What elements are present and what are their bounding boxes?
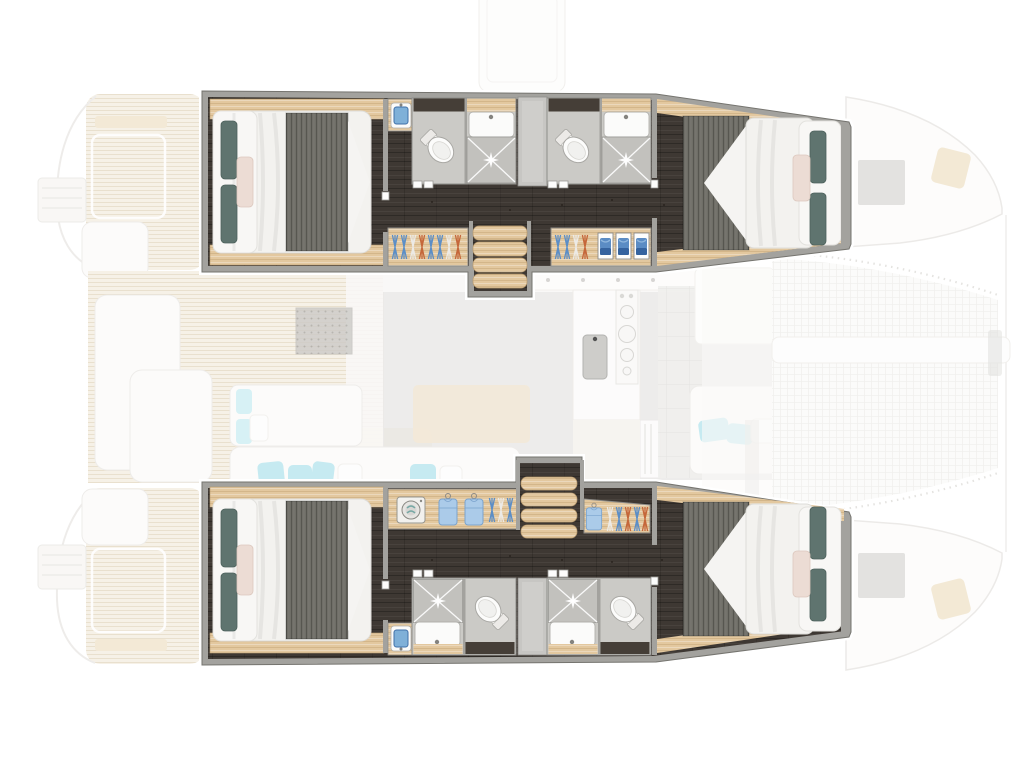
bow-hatch xyxy=(858,553,905,598)
companionway-locker xyxy=(518,97,547,186)
floor-plan-canvas xyxy=(0,0,1024,767)
starboard-forward-wardrobe xyxy=(584,499,650,533)
starboard-bow-deck xyxy=(846,520,1002,670)
stair-tread xyxy=(473,242,527,256)
anchor-chute xyxy=(772,337,1010,363)
port-aft-wardrobe xyxy=(388,228,468,266)
storage-bin xyxy=(598,233,613,259)
helm-seat xyxy=(82,222,148,278)
storage-bin xyxy=(616,233,631,259)
stair-tread xyxy=(473,226,527,240)
salon-chaise xyxy=(230,385,362,446)
boom xyxy=(479,0,565,92)
port-bow-deck xyxy=(846,97,1002,247)
double-bed xyxy=(210,487,384,653)
catamaran-floor-plan xyxy=(0,0,1024,767)
cabin-door xyxy=(382,581,389,589)
double-bed xyxy=(210,99,384,265)
salon-table xyxy=(413,385,530,443)
washing-machine xyxy=(397,497,425,523)
stair-tread xyxy=(473,274,527,288)
trampoline-net xyxy=(772,258,998,510)
port-forward-wardrobe xyxy=(551,228,651,266)
starboard-forward-bathroom xyxy=(547,578,651,655)
cabin-door xyxy=(651,577,658,585)
stair-tread xyxy=(521,525,577,538)
double-bed xyxy=(657,99,844,266)
starboard-aft-bathroom xyxy=(412,578,516,655)
stair-tread xyxy=(473,258,527,272)
stair-tread xyxy=(521,477,577,490)
port-aft-bathroom xyxy=(412,98,516,184)
starboard-aft-cabin xyxy=(210,487,389,653)
port-hull xyxy=(202,91,851,297)
davit-platform xyxy=(38,545,86,589)
stair-tread xyxy=(521,493,577,506)
port-aft-cabin xyxy=(210,99,389,266)
cockpit-bench xyxy=(130,370,212,482)
cabin-washbasin xyxy=(388,99,414,131)
double-bed xyxy=(657,486,844,653)
deck-grate xyxy=(296,308,352,354)
companionway-locker xyxy=(518,578,547,655)
helm-seat xyxy=(82,489,148,545)
cabin-washbasin xyxy=(388,623,414,655)
cabin-door xyxy=(382,192,389,200)
davit-platform xyxy=(38,178,86,222)
port-forward-bathroom xyxy=(547,98,651,184)
bow-hatch xyxy=(858,160,905,205)
starboard-aft-wardrobe xyxy=(388,489,518,529)
cabin-door xyxy=(651,180,658,188)
foredeck xyxy=(702,268,772,508)
galley-sink xyxy=(583,335,607,379)
stair-tread xyxy=(521,509,577,522)
storage-bin xyxy=(634,233,649,259)
fridge xyxy=(640,420,660,478)
